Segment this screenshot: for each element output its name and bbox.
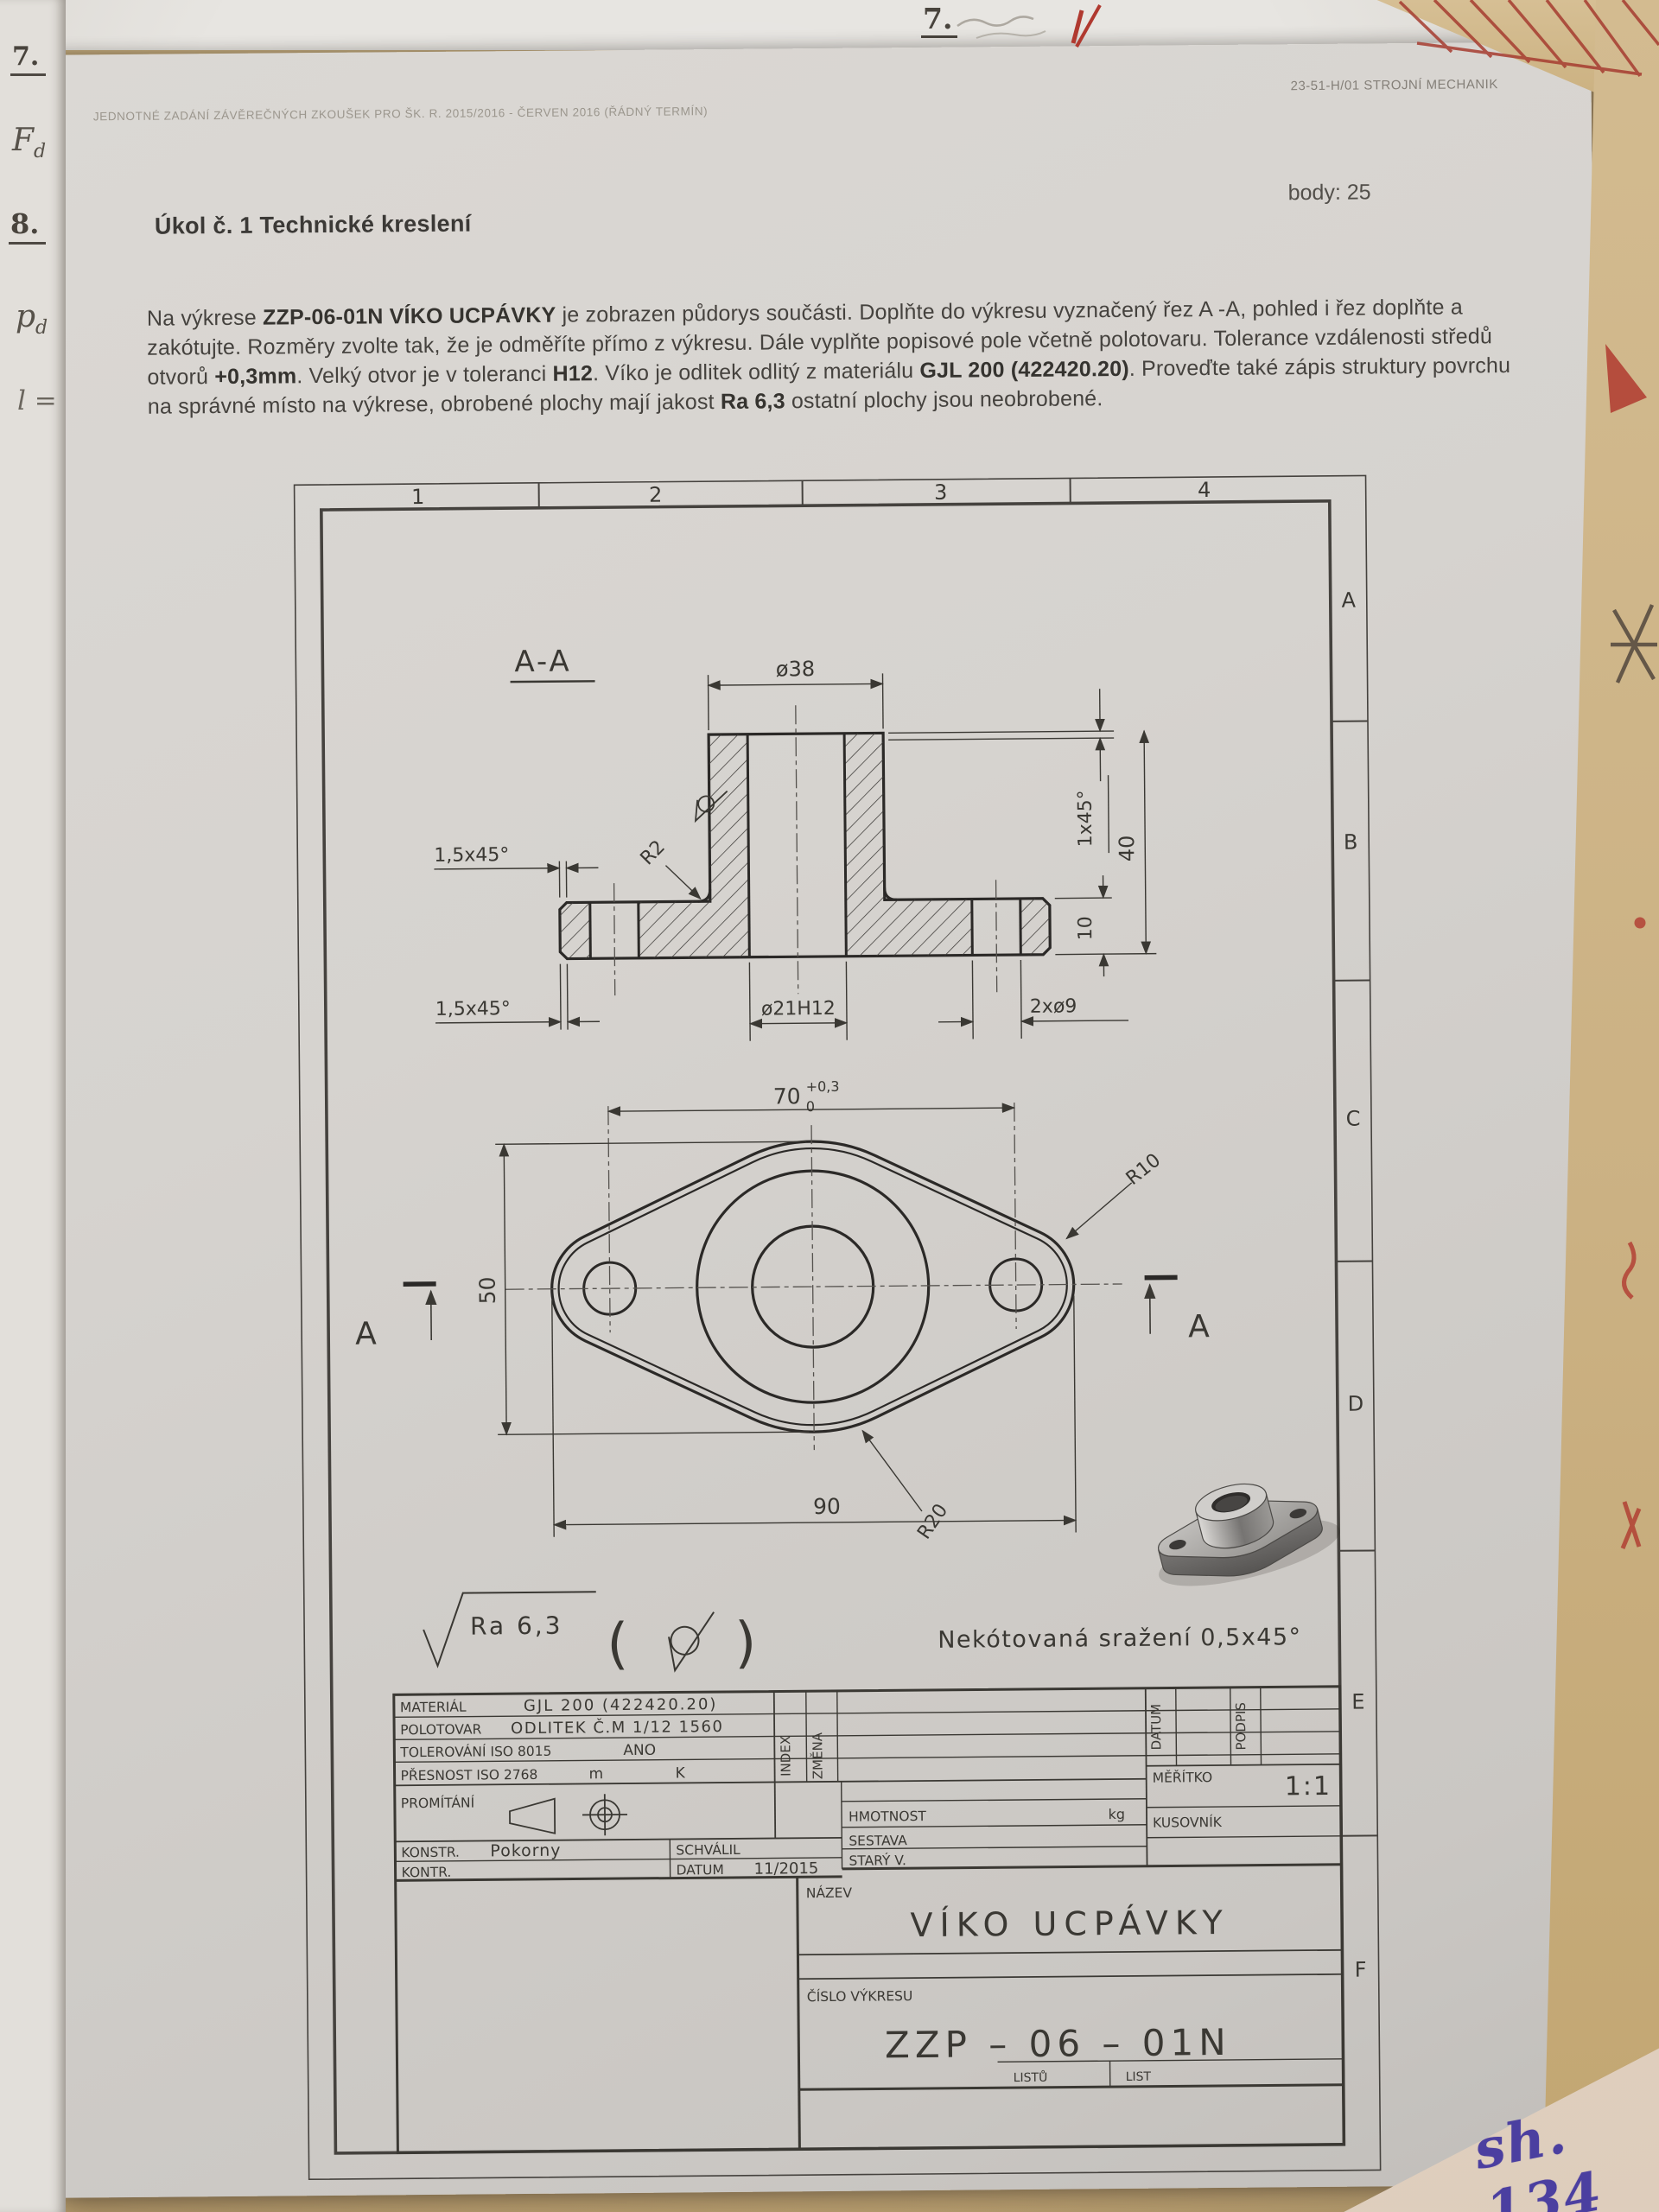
task-text-bold: ZZP-06-01N VÍKO UCPÁVKY [263,303,556,330]
handwritten-margin-l: l = [17,385,57,416]
tb-polotovar-value: ODLITEK Č.M 1/12 1560 [511,1717,723,1738]
surface-roughness-value: Ra 6,3 [470,1611,563,1641]
surface-roughness-note: Ra 6,3 ( ) Nekótovaná sražení 0,5x45° [423,1586,1302,1678]
photographed-exam-sheet: 7. JEDNOTNÉ ZADÁNÍ ZÁVĚREČNÝCH ZKOUŠEK P… [0,0,1659,2212]
unchamfered-note: Nekótovaná sražení 0,5x45° [938,1624,1302,1654]
frame-coordinates: 1 2 3 4 A B C D E F [411,477,1369,1990]
red-flag-mark [1605,344,1647,413]
tb-stary-label: STARÝ V. [849,1852,906,1869]
handwritten-margin-fd: Fd [12,123,46,162]
iso-3d-view [1141,1462,1345,1600]
tb-presnost-label: PŘESNOST ISO 2768 [401,1766,538,1783]
task-text-bold: GJL 200 (422420.20) [919,357,1129,383]
tb-sestava-label: SESTAVA [849,1833,907,1849]
paren-open: ( [607,1612,629,1676]
tb-material-label: MATERIÁL [400,1699,467,1716]
pencil-squiggle-2 [976,31,1046,38]
task-text: . Víko je odlitek odlitý z materiálu [593,359,920,385]
task-paragraph: Na výkrese ZZP-06-01N VÍKO UCPÁVKY je zo… [147,292,1518,422]
tb-nazev-label: NÁZEV [806,1885,853,1901]
tb-listu-label: LISTŮ [1014,2069,1048,2085]
machining-symbol-icon [662,1603,715,1675]
frame-col-label: 4 [1198,478,1211,502]
dim-holes: 2xø9 [1030,995,1077,1017]
dim-h10: 10 [1075,916,1096,940]
tb-list-label: LIST [1126,2070,1152,2084]
title-block-labels: MATERIÁL GJL 200 (422420.20) POLOTOVAR O… [399,1690,1334,2090]
frame-row-label: D [1348,1392,1364,1416]
frame-col-label: 3 [934,480,948,505]
tb-schvalil-label: SCHVÁLIL [676,1841,741,1859]
red-tick-mark [1623,1502,1639,1548]
cut-label-left: A [355,1317,377,1352]
tb-podpis-col: PODPIS [1233,1702,1249,1751]
handwritten-task-number-top: 7. [921,2,957,38]
task-text: . Velký otvor je v toleranci [296,362,552,389]
dim-chamfer-hub: 1x45° [1075,790,1097,847]
handwritten-margin-8: 8. [9,207,46,245]
tb-nazev-value: VÍKO UCPÁVKY [910,1904,1230,1944]
dim-l90: 90 [813,1494,841,1519]
tb-kusovnik-label: KUSOVNÍK [1153,1814,1223,1831]
frame-row-label: F [1355,1958,1367,1982]
tb-meritko-label: MĚŘÍTKO [1153,1769,1213,1786]
centerlines-plan [504,1102,1123,1452]
tb-promitani-label: PROMÍTÁNÍ [401,1795,475,1812]
tb-tolerovani-label: TOLEROVÁNÍ ISO 8015 [399,1743,551,1761]
plan-view: 70 +0,3 0 50 90 R10 R20 A A [353,1075,1212,1548]
tb-hmotnost-unit: kg [1109,1806,1126,1822]
tb-index-col: INDEX [778,1736,793,1777]
task-text: Na výkrese [147,306,263,331]
margin-f-sub: d [34,141,46,162]
margin-f: F [12,123,34,158]
pencil-cross-mark [1611,605,1657,683]
tb-konstr-label: KONSTR. [401,1845,460,1861]
tb-presnost-m: m [589,1765,604,1783]
red-check-stroke-1 [1073,10,1082,43]
dim-chamfer-bottom: 1,5x45° [435,998,511,1020]
handwritten-margin-7: 7. [10,41,46,76]
dim-r10: R10 [1122,1149,1165,1190]
dim-bore: ø21H12 [761,998,836,1020]
tb-tolerovani-value: ANO [623,1742,656,1759]
section-label: A-A [514,645,572,680]
dim-d38: ø38 [776,657,815,681]
frame-row-label: C [1346,1107,1361,1131]
frame-row-label: E [1351,1690,1364,1714]
cut-label-right: A [1188,1309,1210,1344]
task-text-bold: H12 [552,361,593,385]
dim-h40: 40 [1115,836,1139,862]
tb-hmotnost-label: HMOTNOST [849,1808,926,1825]
dim-chamfer-top: 1,5x45° [434,844,509,867]
tb-cislo-label: ČÍSLO VÝKRESU [807,1987,913,2005]
document-header-left: JEDNOTNÉ ZADÁNÍ ZÁVĚREČNÝCH ZKOUŠEK PRO … [93,105,709,123]
tb-datum-col: DATUM [1148,1704,1164,1751]
dim-pitch-tol-dn: 0 [806,1098,815,1115]
part-outline-section [558,732,1050,959]
pencil-squiggle [957,16,1033,26]
tb-polotovar-label: POLOTOVAR [400,1721,482,1738]
task-text-bold: Ra 6,3 [721,389,785,414]
dim-w50: 50 [475,1276,500,1304]
tb-kontr-label: KONTR. [402,1865,452,1881]
margin-p: p [16,299,35,334]
tb-datum-value: 11/2015 [753,1859,818,1878]
task-title: Úkol č. 1 Technické kreslení [155,211,472,240]
tb-presnost-k: K [676,1764,686,1782]
tb-datum-label: DATUM [676,1862,723,1878]
technical-drawing: 1 2 3 4 A B C D E F A-A [293,470,1392,2186]
task-text-bold: +0,3mm [214,364,296,389]
tb-meritko-value: 1:1 [1285,1771,1332,1802]
section-view: A-A [432,639,1157,1044]
paren-close: ) [734,1611,757,1675]
red-dot-mark [1635,918,1646,929]
task-text: ostatní plochy jsou neobrobené. [785,386,1103,413]
red-squiggle-mark [1624,1243,1635,1298]
red-check-stroke-2 [1077,5,1100,47]
frame-col-label: 1 [411,485,425,509]
title-block: MATERIÁL GJL 200 (422420.20) POLOTOVAR O… [394,1687,1344,2153]
dimensions-section [433,671,1158,1044]
tb-material-value: GJL 200 (422420.20) [524,1695,718,1715]
projection-symbol-icon [510,1794,627,1836]
tb-konstr-value: Pokorny [490,1841,561,1861]
dim-pitch-tol-up: +0,3 [806,1078,840,1095]
grading-marks [942,0,1287,50]
tb-zmena-col: ZMĚNA [809,1732,825,1779]
dimension-labels-section: ø38 1x45° 40 10 1,5x45° 1,5x45° R2 ø21H1… [432,654,1141,1023]
exam-sheet: JEDNOTNÉ ZADÁNÍ ZÁVĚREČNÝCH ZKOUŠEK PRO … [35,41,1610,2198]
dimension-labels-plan: 70 +0,3 0 50 90 R10 R20 [474,1076,1168,1548]
frame-row-label: B [1344,830,1358,855]
frame-row-label: A [1341,588,1356,613]
handwritten-margin-pd: pd [16,299,48,339]
dim-r2: R2 [637,836,670,869]
points-label: body: 25 [1288,180,1371,206]
frame-col-label: 2 [649,483,663,507]
tb-cislo-value: ZZP – 06 – 01N [885,2021,1231,2066]
document-header-right: 23-51-H/01 STROJNÍ MECHANIK [1291,77,1498,93]
margin-p-sub: d [35,317,48,339]
dim-pitch: 70 [773,1084,801,1109]
